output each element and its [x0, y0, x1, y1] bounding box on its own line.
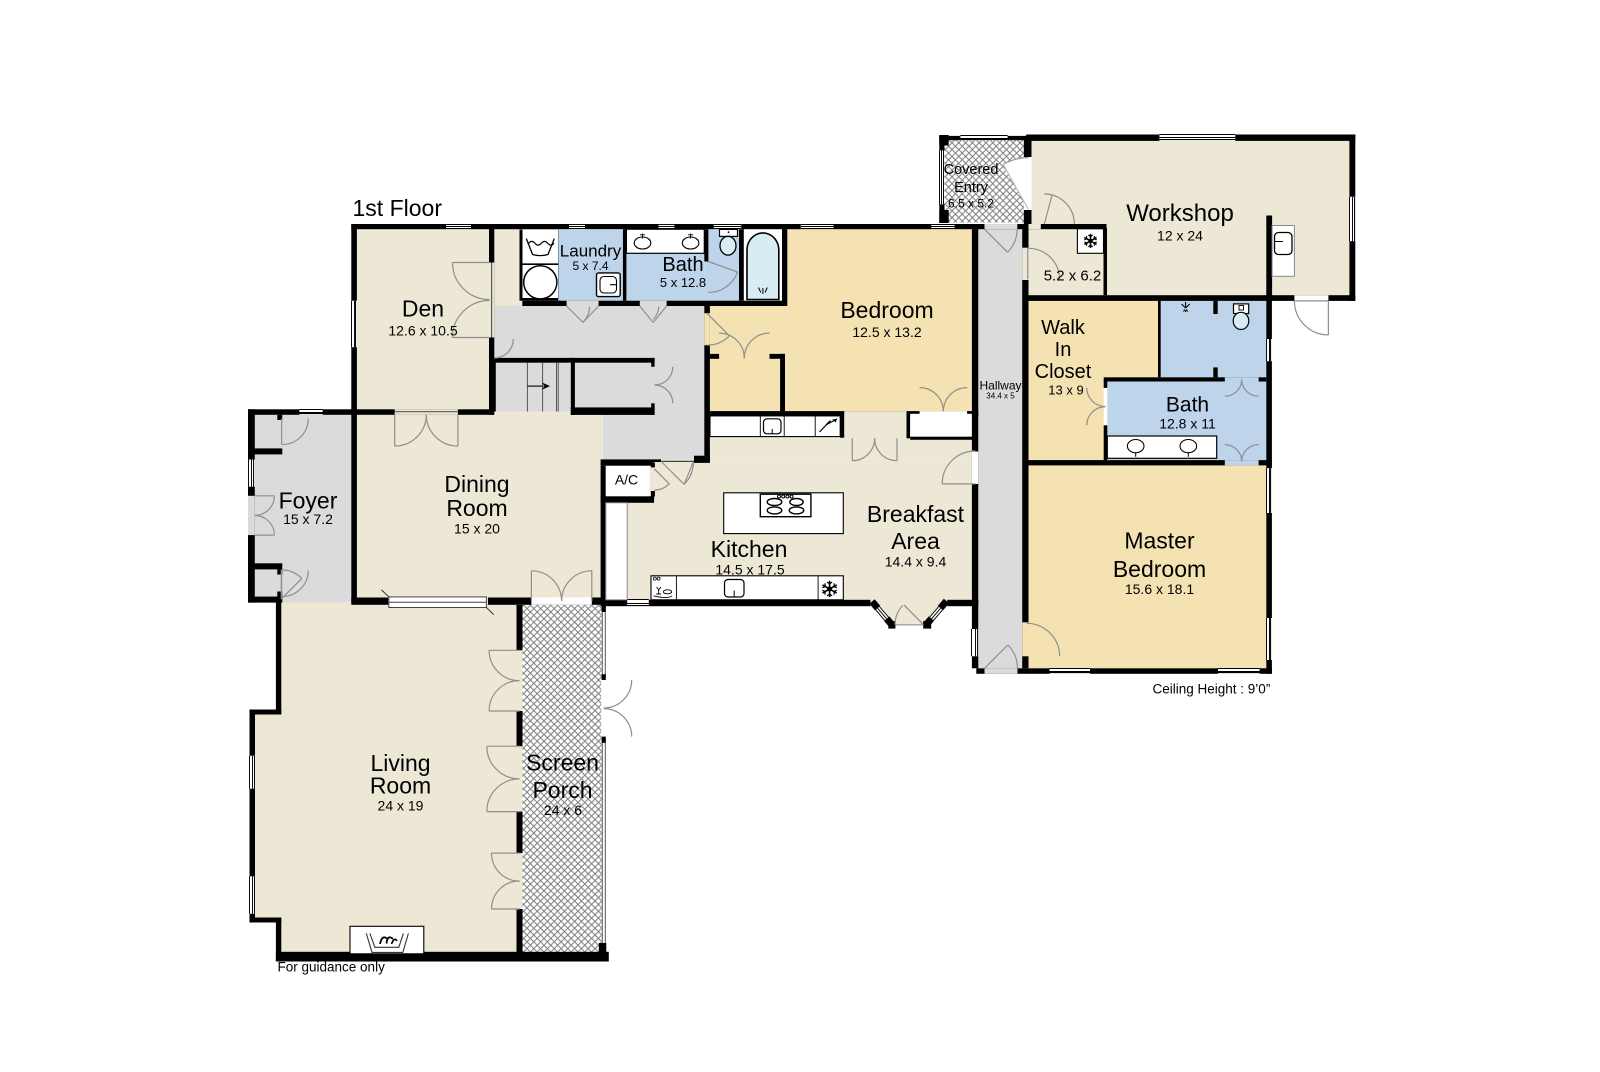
svg-text:12.8 x 11: 12.8 x 11	[1159, 416, 1216, 432]
svg-text:Covered: Covered	[944, 162, 999, 178]
svg-text:14.4 x 9.4: 14.4 x 9.4	[885, 554, 947, 570]
svg-text:Bath: Bath	[1166, 394, 1209, 417]
svg-text:Laundry: Laundry	[560, 242, 622, 261]
svg-text:A/C: A/C	[615, 472, 638, 488]
svg-text:Bedroom: Bedroom	[840, 297, 933, 323]
svg-text:Room: Room	[370, 773, 431, 799]
svg-text:15 x 7.2: 15 x 7.2	[283, 511, 333, 527]
svg-text:Room: Room	[446, 495, 507, 521]
svg-text:15.6 x 18.1: 15.6 x 18.1	[1125, 581, 1194, 597]
svg-text:Bath: Bath	[662, 254, 703, 276]
svg-text:24 x 6: 24 x 6	[544, 802, 582, 818]
svg-text:Kitchen: Kitchen	[711, 536, 788, 562]
svg-text:1st Floor: 1st Floor	[353, 195, 443, 221]
svg-text:Dining: Dining	[444, 471, 509, 497]
svg-text:Master: Master	[1124, 528, 1195, 554]
svg-text:13 x 9: 13 x 9	[1048, 383, 1083, 398]
svg-text:In: In	[1055, 339, 1072, 361]
svg-text:Porch: Porch	[532, 777, 592, 803]
svg-text:For guidance only: For guidance only	[278, 960, 386, 975]
svg-text:Entry: Entry	[954, 180, 989, 196]
svg-text:Ceiling Height : 9’0”: Ceiling Height : 9’0”	[1153, 682, 1271, 697]
svg-text:Breakfast: Breakfast	[867, 501, 965, 527]
svg-text:15 x 20: 15 x 20	[454, 521, 500, 537]
svg-text:Bedroom: Bedroom	[1113, 556, 1206, 582]
svg-text:Closet: Closet	[1035, 361, 1092, 383]
svg-text:12.5 x 13.2: 12.5 x 13.2	[852, 324, 921, 340]
svg-text:24 x 19: 24 x 19	[378, 798, 424, 814]
svg-text:5 x 7.4: 5 x 7.4	[572, 259, 608, 273]
svg-text:5.2 x 6.2: 5.2 x 6.2	[1044, 268, 1102, 285]
svg-text:Workshop: Workshop	[1126, 200, 1234, 227]
svg-text:Den: Den	[402, 296, 444, 322]
svg-text:Foyer: Foyer	[279, 488, 338, 514]
svg-text:Walk: Walk	[1041, 317, 1086, 339]
svg-text:12 x 24: 12 x 24	[1157, 228, 1203, 244]
svg-text:12.6 x 10.5: 12.6 x 10.5	[388, 323, 457, 339]
svg-text:6.5 x 5.2: 6.5 x 5.2	[948, 197, 994, 211]
svg-text:Area: Area	[891, 528, 940, 554]
svg-text:Hallway: Hallway	[979, 379, 1021, 393]
svg-text:5 x 12.8: 5 x 12.8	[660, 275, 706, 290]
svg-text:14.5 x 17.5: 14.5 x 17.5	[715, 562, 784, 578]
svg-text:34.4 x 5: 34.4 x 5	[986, 392, 1015, 401]
svg-text:Screen: Screen	[526, 750, 599, 776]
